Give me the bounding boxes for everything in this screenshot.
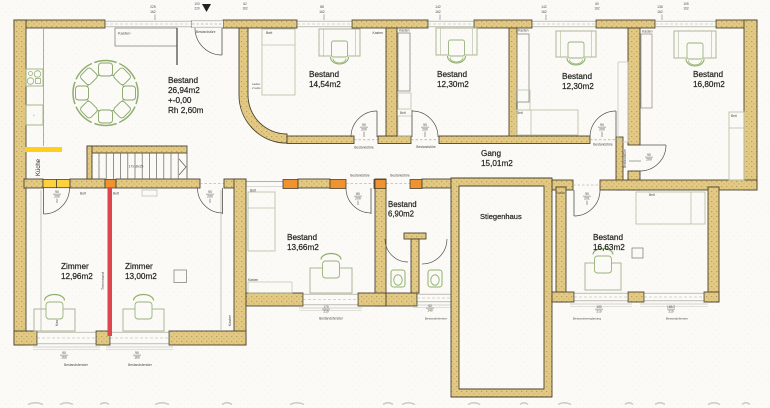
svg-text:Zimmer: Zimmer — [125, 262, 153, 271]
svg-text:14,54m2: 14,54m2 — [309, 80, 341, 89]
svg-text:Stiegenhaus: Stiegenhaus — [480, 212, 522, 221]
svg-text:Bett: Bett — [266, 31, 272, 35]
svg-text:13,66m2: 13,66m2 — [287, 243, 319, 252]
svg-text:Bett: Bett — [731, 114, 737, 118]
svg-text:160: 160 — [61, 356, 67, 360]
svg-text:Bestandsfenster: Bestandsfenster — [319, 317, 344, 321]
svg-text:200: 200 — [646, 158, 652, 162]
svg-text:62: 62 — [243, 2, 247, 6]
svg-text:12,96m2: 12,96m2 — [61, 272, 93, 281]
svg-text:90: 90 — [362, 123, 366, 127]
svg-text:Trennwand: Trennwand — [101, 272, 105, 290]
svg-text:Bett: Bett — [400, 111, 406, 115]
svg-text:Bestand: Bestand — [437, 70, 467, 79]
svg-text:26,94m2: 26,94m2 — [168, 86, 200, 95]
svg-text:Bestandstüre: Bestandstüre — [416, 145, 436, 149]
svg-text:17x18x25: 17x18x25 — [129, 165, 144, 169]
svg-text:210: 210 — [323, 310, 329, 314]
svg-text:225: 225 — [150, 5, 156, 9]
svg-text:105: 105 — [683, 2, 689, 6]
svg-text:Bestand: Bestand — [693, 70, 723, 79]
svg-text:16,63m2: 16,63m2 — [593, 243, 625, 252]
svg-text:165/2: 165/2 — [667, 305, 675, 309]
svg-text:Kasten: Kasten — [642, 30, 653, 34]
svg-text:Bestand: Bestand — [593, 233, 623, 242]
svg-text:16,80m2: 16,80m2 — [693, 80, 725, 89]
svg-text:Bestand: Bestand — [562, 72, 592, 81]
svg-text:Bestandstüre: Bestandstüre — [196, 30, 216, 34]
svg-text:136: 136 — [657, 5, 663, 9]
svg-text:60: 60 — [428, 304, 432, 308]
svg-text:200: 200 — [361, 128, 367, 132]
svg-text:201: 201 — [584, 197, 590, 201]
svg-text:210: 210 — [668, 310, 674, 314]
svg-text:Bestandsfenster: Bestandsfenster — [64, 363, 89, 367]
svg-text:160: 160 — [134, 356, 140, 360]
svg-text:Bestandstüre: Bestandstüre — [350, 174, 370, 178]
svg-text:90: 90 — [208, 190, 212, 194]
svg-text:90: 90 — [423, 123, 427, 127]
svg-text:Bett: Bett — [517, 111, 523, 115]
svg-text:Bestand: Bestand — [287, 233, 317, 242]
svg-text:90: 90 — [62, 351, 66, 355]
svg-text:162: 162 — [150, 10, 156, 14]
svg-text:Rh 2,60m: Rh 2,60m — [168, 106, 204, 115]
svg-text:Zimmer: Zimmer — [61, 262, 89, 271]
svg-text:12,30m2: 12,30m2 — [437, 80, 469, 89]
svg-text:100: 100 — [194, 2, 200, 6]
svg-text:Bett: Bett — [113, 192, 119, 196]
svg-text:+-0,00: +-0,00 — [168, 96, 192, 105]
svg-text:162: 162 — [594, 7, 600, 11]
svg-text:200: 200 — [599, 128, 605, 132]
svg-text:220: 220 — [194, 7, 200, 11]
svg-text:162: 162 — [319, 10, 325, 14]
svg-text:90: 90 — [135, 351, 139, 355]
svg-text:140: 140 — [427, 309, 433, 313]
svg-text:142: 142 — [435, 5, 441, 9]
svg-text:90: 90 — [55, 190, 59, 194]
svg-text:Bestandsverglasung: Bestandsverglasung — [573, 317, 601, 321]
svg-text:Kasten: Kasten — [228, 315, 232, 326]
svg-text:162: 162 — [657, 10, 663, 14]
svg-text:15,01m2: 15,01m2 — [481, 159, 513, 168]
svg-text:Küche: Küche — [36, 158, 42, 176]
svg-text:Bestandstüre: Bestandstüre — [390, 174, 410, 178]
svg-text:Kasse: Kasse — [556, 191, 565, 195]
svg-text:Kasten: Kasten — [118, 31, 130, 36]
svg-text:90: 90 — [600, 123, 604, 127]
svg-text:Bestandsfenster: Bestandsfenster — [425, 317, 447, 321]
svg-text:Bett: Bett — [80, 192, 86, 196]
svg-text:Kasten: Kasten — [248, 278, 258, 282]
svg-text:60: 60 — [595, 2, 599, 6]
svg-text:Bestandstüre: Bestandstüre — [623, 149, 627, 168]
svg-text:170: 170 — [323, 305, 329, 309]
svg-text:90: 90 — [585, 192, 589, 196]
svg-text:Bett: Bett — [649, 193, 655, 197]
svg-text:162: 162 — [435, 10, 441, 14]
svg-text:210: 210 — [596, 310, 602, 314]
svg-text:Bestandsfenster: Bestandsfenster — [128, 363, 153, 367]
svg-text:2 teilw: 2 teilw — [252, 86, 261, 90]
svg-text:200: 200 — [54, 195, 60, 199]
svg-text:12,30m2: 12,30m2 — [562, 82, 594, 91]
svg-text:Bestand: Bestand — [309, 70, 339, 79]
svg-text:6,90m2: 6,90m2 — [388, 210, 414, 219]
svg-text:200: 200 — [422, 128, 428, 132]
svg-text:Bestandstüre: Bestandstüre — [354, 146, 374, 150]
svg-text:Gang: Gang — [481, 149, 501, 158]
svg-text:Kasten: Kasten — [372, 31, 383, 35]
svg-text:142: 142 — [541, 5, 547, 9]
svg-text:Bestandsfenster: Bestandsfenster — [666, 317, 688, 321]
svg-text:88: 88 — [320, 5, 324, 9]
svg-text:162: 162 — [242, 7, 248, 11]
svg-text:Bestandstüre: Bestandstüre — [593, 143, 613, 147]
svg-text:90: 90 — [647, 153, 651, 157]
svg-text:200: 200 — [355, 197, 361, 201]
svg-text:13,00m2: 13,00m2 — [125, 272, 157, 281]
svg-text:200: 200 — [207, 195, 213, 199]
svg-text:Kasten: Kasten — [399, 29, 410, 33]
svg-text:Kasten: Kasten — [518, 29, 529, 33]
svg-text:162: 162 — [541, 10, 547, 14]
svg-text:150: 150 — [596, 305, 602, 309]
svg-text:80: 80 — [356, 192, 360, 196]
svg-text:Bestand: Bestand — [388, 200, 417, 209]
svg-text:Bestand: Bestand — [168, 76, 198, 85]
svg-text:162: 162 — [683, 7, 689, 11]
